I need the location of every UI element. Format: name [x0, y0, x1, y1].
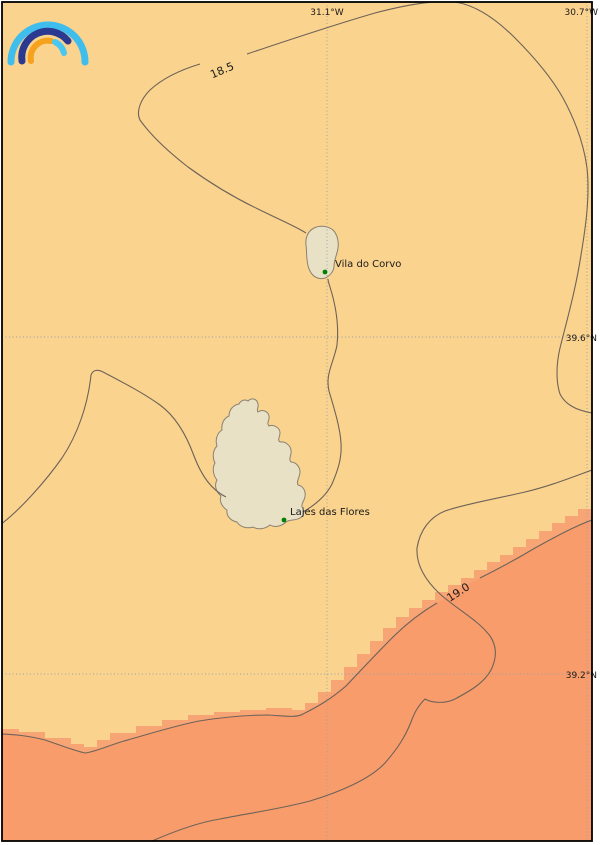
sst-contour-map-page: 31.1°W 30.7°W 39.6°N 39.2°N 18.5 19.0 Vi…	[0, 0, 600, 845]
map-canvas: 31.1°W 30.7°W 39.6°N 39.2°N 18.5 19.0 Vi…	[0, 0, 600, 845]
place-dot-lajes-das-flores	[282, 518, 287, 523]
meridian-label-30-7w: 30.7°W	[565, 8, 599, 18]
meridian-label-31-1w: 31.1°W	[310, 8, 344, 18]
place-dot-vila-do-corvo	[323, 270, 328, 275]
place-label-lajes-das-flores: Lajes das Flores	[290, 507, 370, 518]
island-corvo	[306, 226, 338, 278]
place-label-vila-do-corvo: Vila do Corvo	[335, 259, 401, 270]
